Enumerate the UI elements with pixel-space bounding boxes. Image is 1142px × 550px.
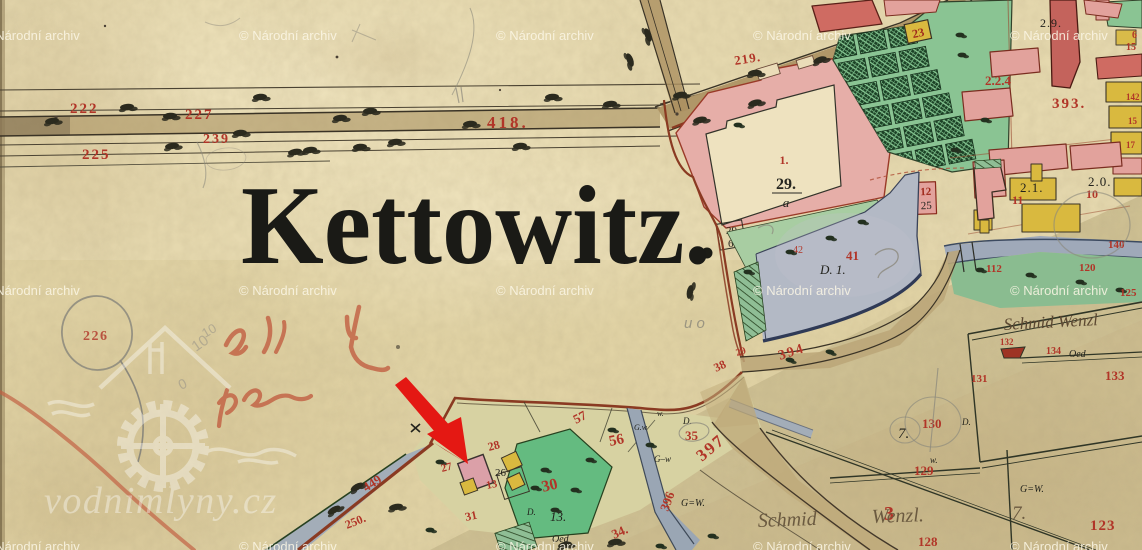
svg-text:© Národní archiv: © Národní archiv: [753, 539, 851, 550]
svg-text:2.2.4: 2.2.4: [985, 73, 1012, 88]
svg-text:112: 112: [986, 263, 1002, 275]
svg-text:D. 1.: D. 1.: [819, 262, 846, 277]
svg-text:a: a: [783, 195, 790, 210]
svg-text:133: 133: [1105, 368, 1125, 383]
svg-text:13.: 13.: [550, 509, 566, 524]
svg-text:12: 12: [920, 186, 932, 198]
svg-text:7.: 7.: [1012, 503, 1026, 524]
svg-text:© Národní archiv: © Národní archiv: [0, 539, 80, 550]
svg-text:129: 129: [914, 463, 934, 478]
svg-text:134: 134: [1046, 346, 1061, 357]
svg-text:© Národní archiv: © Národní archiv: [496, 539, 594, 550]
svg-text:7.: 7.: [898, 426, 909, 442]
svg-text:© Národní archiv: © Národní archiv: [239, 28, 337, 43]
svg-text:© Národní archiv: © Národní archiv: [753, 28, 851, 43]
svg-text:226: 226: [83, 329, 109, 344]
svg-text:41: 41: [846, 248, 859, 263]
svg-text:239: 239: [203, 132, 230, 147]
svg-text:© Národní archiv: © Národní archiv: [496, 283, 594, 298]
svg-text:© Národní archiv: © Národní archiv: [1010, 283, 1108, 298]
svg-text:26: 26: [495, 467, 507, 479]
svg-text:G–w: G–w: [654, 454, 671, 464]
svg-text:Kettowitz.: Kettowitz.: [241, 164, 711, 288]
svg-text:418.: 418.: [487, 113, 529, 132]
svg-text:© Národní archiv: © Národní archiv: [496, 28, 594, 43]
svg-text:29.: 29.: [776, 176, 796, 193]
svg-text:© Národní archiv: © Národní archiv: [239, 283, 337, 298]
svg-text:123: 123: [1090, 518, 1116, 534]
svg-text:2.1.: 2.1.: [1020, 180, 1044, 195]
svg-text:120: 120: [1079, 262, 1096, 274]
svg-text:u o: u o: [684, 315, 705, 332]
svg-text:128: 128: [918, 534, 938, 549]
svg-text:© Národní archiv: © Národní archiv: [1010, 539, 1108, 550]
svg-text:222: 222: [70, 101, 99, 117]
svg-text:393.: 393.: [1052, 96, 1086, 112]
svg-text:© Národní archiv: © Národní archiv: [0, 283, 80, 298]
svg-text:© Národní archiv: © Národní archiv: [0, 28, 80, 43]
svg-text:15: 15: [1128, 116, 1138, 126]
svg-text:w.: w.: [930, 455, 938, 465]
svg-text:10: 10: [1086, 187, 1098, 201]
svg-text:© Národní archiv: © Národní archiv: [753, 283, 851, 298]
svg-text:Schmid: Schmid: [757, 508, 818, 532]
svg-text:15: 15: [1126, 42, 1136, 53]
svg-text:© Národní archiv: © Národní archiv: [239, 539, 337, 550]
svg-text:D.: D.: [961, 417, 971, 427]
svg-text:1.: 1.: [780, 153, 789, 167]
svg-text:© Národní archiv: © Národní archiv: [1010, 28, 1108, 43]
svg-text:131: 131: [971, 373, 988, 385]
svg-text:6: 6: [1132, 30, 1137, 41]
svg-text:D.: D.: [526, 507, 536, 517]
svg-text:G=W.: G=W.: [1020, 484, 1044, 495]
svg-text:17: 17: [1126, 140, 1136, 150]
svg-text:w.: w.: [657, 409, 664, 418]
svg-text:227: 227: [185, 107, 214, 123]
svg-text:125: 125: [1120, 287, 1137, 299]
svg-text:142: 142: [1126, 92, 1140, 102]
svg-text:132: 132: [1000, 337, 1014, 347]
svg-text:vodnimlyny.cz: vodnimlyny.cz: [44, 480, 278, 522]
svg-text:Wenzl.: Wenzl.: [871, 504, 924, 528]
svg-text:G.w: G.w: [634, 423, 648, 432]
svg-text:2.0.: 2.0.: [1088, 174, 1112, 189]
svg-text:Oed: Oed: [1069, 349, 1087, 360]
svg-text:G=W.: G=W.: [681, 498, 705, 509]
svg-text:225: 225: [82, 147, 111, 163]
svg-text:11: 11: [1012, 193, 1023, 207]
svg-text:25: 25: [921, 200, 933, 212]
